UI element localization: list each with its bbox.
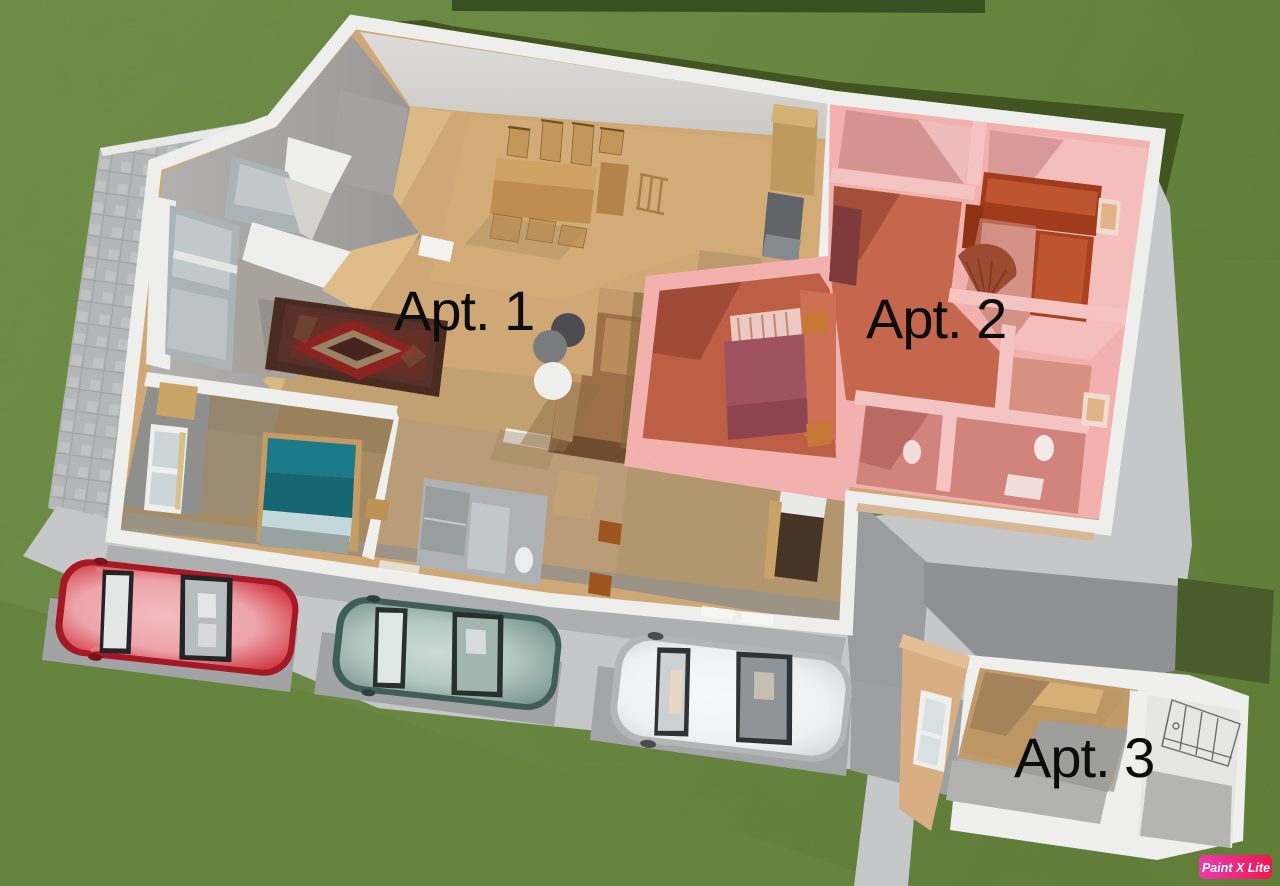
svg-text:Apt. 1: Apt. 1 (394, 279, 534, 342)
svg-text:Apt. 3: Apt. 3 (1014, 726, 1154, 789)
svg-text:Paint X Lite: Paint X Lite (1202, 861, 1270, 875)
svg-text:Apt. 2: Apt. 2 (866, 287, 1006, 350)
